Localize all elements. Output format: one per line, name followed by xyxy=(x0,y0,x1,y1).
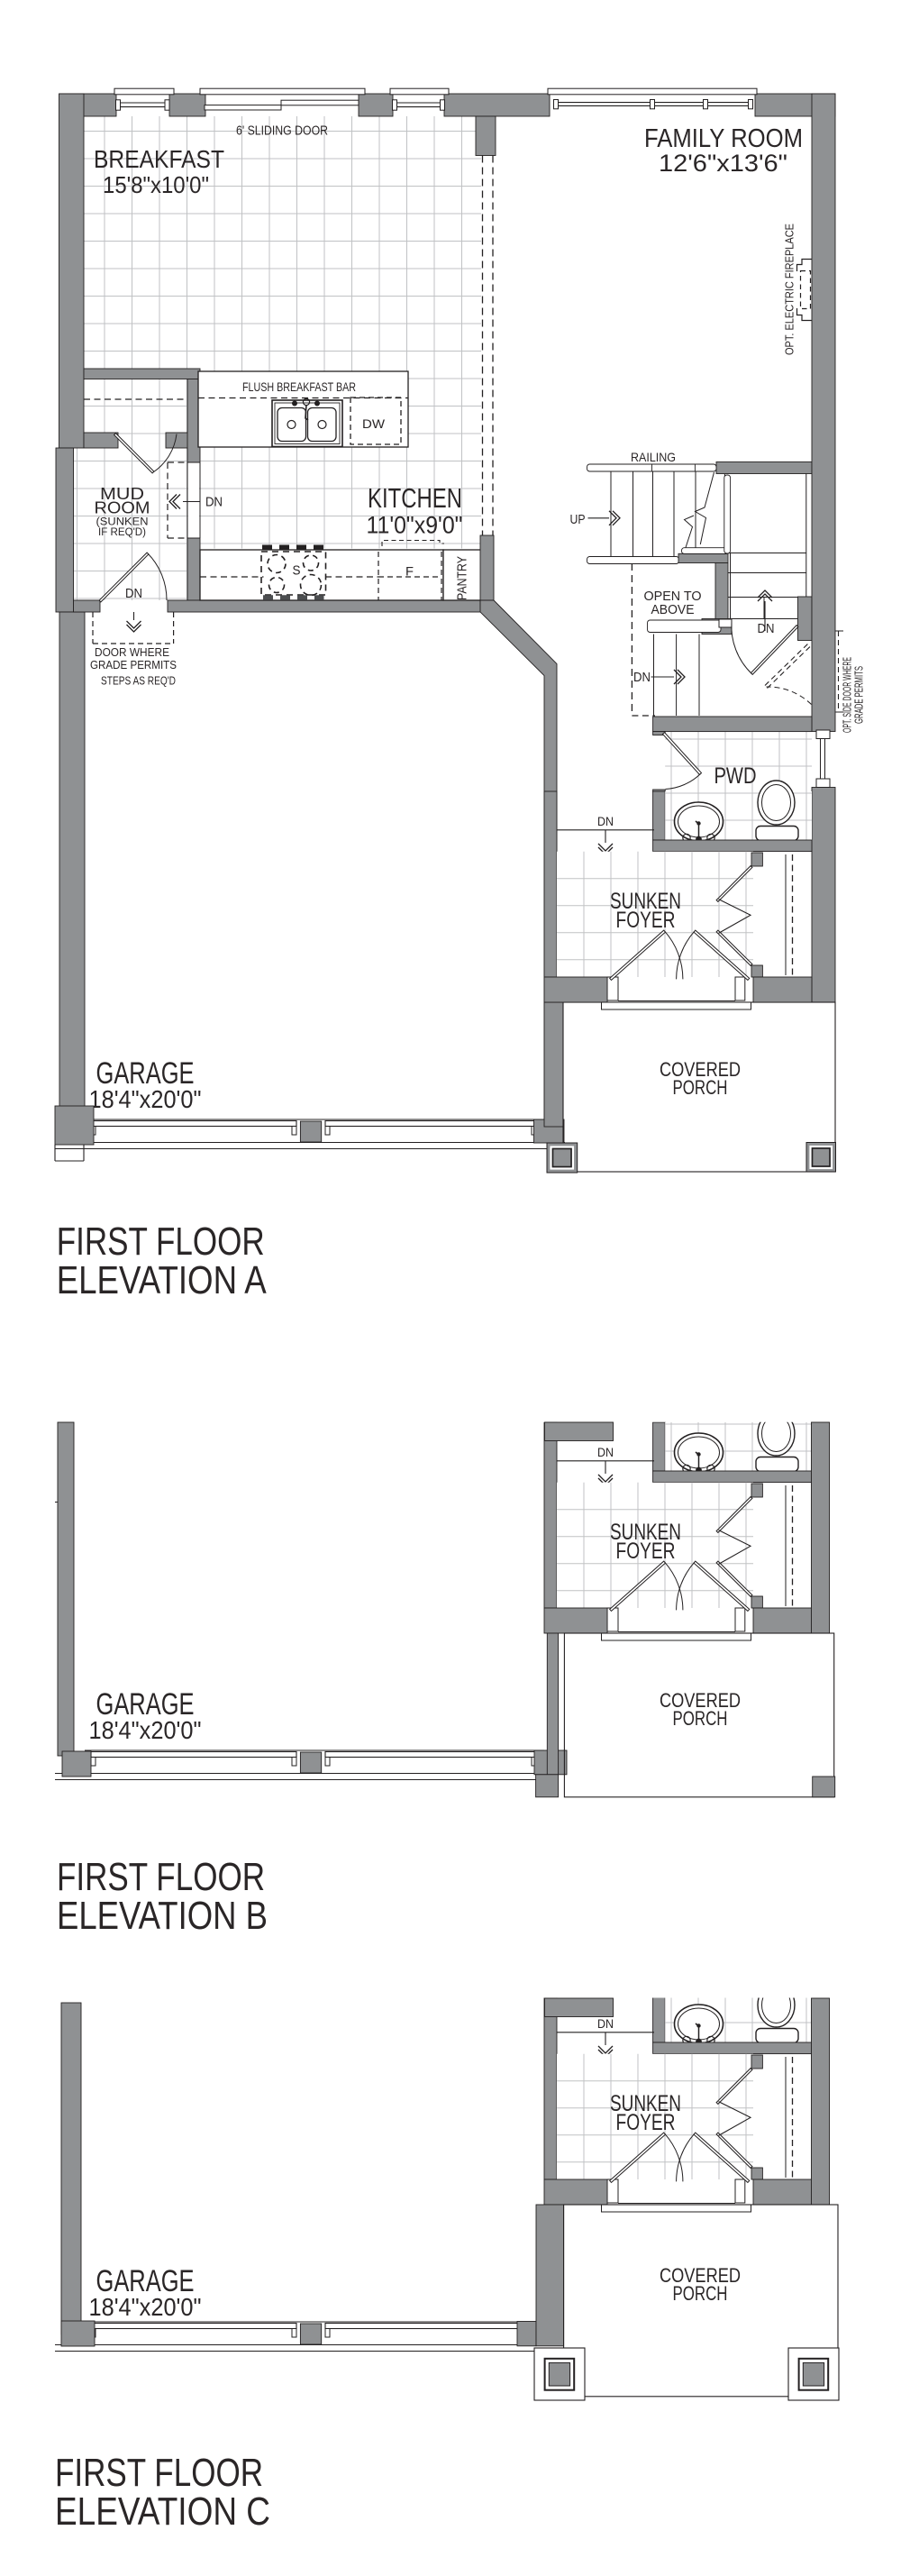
svg-text:DN: DN xyxy=(205,496,223,510)
svg-text:12'6"x13'6": 12'6"x13'6" xyxy=(659,150,787,177)
svg-text:KITCHEN: KITCHEN xyxy=(368,482,462,514)
svg-text:DOOR WHERE: DOOR WHERE xyxy=(95,645,169,659)
svg-text:DN: DN xyxy=(125,587,142,601)
svg-text:BREAKFAST: BREAKFAST xyxy=(94,145,224,173)
svg-text:DN: DN xyxy=(758,622,775,636)
svg-text:S: S xyxy=(293,563,301,579)
svg-text:ELEVATION C: ELEVATION C xyxy=(55,2490,270,2534)
svg-text:ELEVATION B: ELEVATION B xyxy=(57,1895,268,1938)
svg-text:ELEVATION A: ELEVATION A xyxy=(57,1259,267,1302)
svg-text:PANTRY: PANTRY xyxy=(456,556,470,600)
svg-text:DW: DW xyxy=(362,416,386,431)
svg-text:PORCH: PORCH xyxy=(673,2282,728,2305)
svg-text:FIRST FLOOR: FIRST FLOOR xyxy=(57,1856,265,1899)
svg-text:F: F xyxy=(405,564,414,579)
svg-text:GRADE PERMITS: GRADE PERMITS xyxy=(853,666,866,724)
svg-text:DN: DN xyxy=(633,671,651,685)
svg-text:PORCH: PORCH xyxy=(673,1707,728,1730)
svg-text:6' SLIDING DOOR: 6' SLIDING DOOR xyxy=(236,123,328,139)
svg-text:ROOM: ROOM xyxy=(95,499,150,517)
svg-text:IF REQ'D): IF REQ'D) xyxy=(98,525,146,538)
svg-text:PWD: PWD xyxy=(714,763,757,789)
svg-text:OPT. ELECTRIC FIREPLACE: OPT. ELECTRIC FIREPLACE xyxy=(783,224,796,355)
svg-text:STEPS AS REQ'D: STEPS AS REQ'D xyxy=(101,674,176,688)
svg-text:RAILING: RAILING xyxy=(631,450,676,464)
svg-text:UP: UP xyxy=(570,512,586,527)
svg-text:ABOVE: ABOVE xyxy=(651,602,695,617)
svg-text:15'8"x10'0": 15'8"x10'0" xyxy=(103,171,209,198)
svg-text:18'4"x20'0": 18'4"x20'0" xyxy=(89,2293,202,2321)
svg-text:PORCH: PORCH xyxy=(673,1076,728,1099)
svg-text:18'4"x20'0": 18'4"x20'0" xyxy=(89,1716,202,1744)
svg-text:11'0"x9'0": 11'0"x9'0" xyxy=(367,512,463,539)
svg-text:OPT. SIDE DOOR WHERE: OPT. SIDE DOOR WHERE xyxy=(842,657,854,733)
svg-text:FLUSH BREAKFAST BAR: FLUSH BREAKFAST BAR xyxy=(242,380,356,394)
svg-text:18'4"x20'0": 18'4"x20'0" xyxy=(89,1085,202,1113)
svg-text:FIRST FLOOR: FIRST FLOOR xyxy=(55,2452,263,2495)
svg-text:FIRST FLOOR: FIRST FLOOR xyxy=(57,1220,265,1264)
svg-text:GRADE PERMITS: GRADE PERMITS xyxy=(90,658,177,671)
